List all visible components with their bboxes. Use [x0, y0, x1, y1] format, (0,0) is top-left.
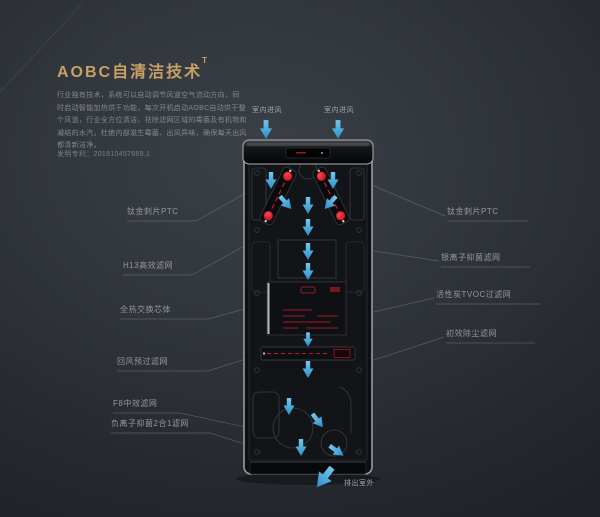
diagram-graphics — [0, 0, 600, 517]
callout-label-left-heat-exchange-core: 全热交换芯体 — [120, 304, 171, 315]
page-background: AOBC自清洁技术T 行业独有技术，系统可以自动调节风道空气流动方向，同 时启动… — [0, 0, 600, 517]
callout-label-left-ptc: 钛金刺片PTC — [127, 206, 179, 217]
decor-diagonal-line — [0, 4, 82, 92]
machine-base — [250, 462, 366, 474]
callout-label-right-ptc: 钛金刺片PTC — [447, 206, 499, 217]
callout-label-right-silver-ion-filter: 银离子抑菌滤网 — [441, 252, 501, 263]
callout-label-right-dust-filter: 初效除尘滤网 — [446, 328, 497, 339]
callout-label-left-f8-filter: F8中效滤网 — [113, 398, 157, 409]
machine-display — [286, 148, 330, 158]
airflow-label-bottom: 排出室外 — [344, 478, 374, 488]
callout-label-left-return-air-prefilter: 回风预过滤网 — [117, 356, 168, 367]
machine-top-cap — [243, 140, 373, 164]
callout-label-right-tvoc-filter: 活性炭TVOC过滤网 — [436, 289, 511, 300]
filter-strip — [261, 347, 355, 360]
airflow-arrow-intake-right — [332, 120, 344, 139]
callout-label-left-h13-filter: H13高效滤网 — [123, 260, 173, 271]
airflow-arrow-intake-left — [260, 120, 272, 139]
machine-illustration — [236, 140, 380, 485]
control-board — [267, 282, 346, 335]
airflow-label-top-left: 室内进风 — [252, 105, 282, 115]
callout-label-left-anion-filter: 负离子抑菌2合1滤网 — [111, 418, 189, 429]
airflow-label-top-right: 室内进风 — [324, 105, 354, 115]
